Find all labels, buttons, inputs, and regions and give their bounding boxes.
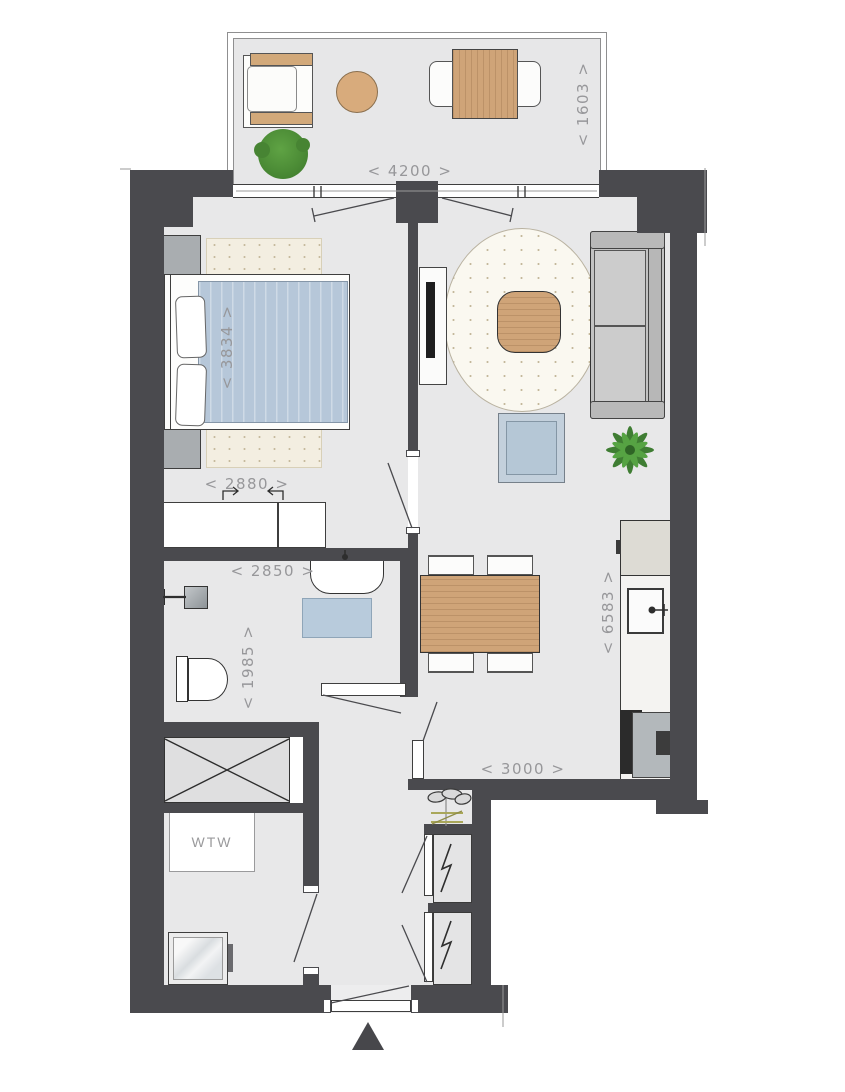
- nightstand: [163, 235, 201, 275]
- wall-bottom-right: [411, 985, 508, 1013]
- entrance-door: [331, 1000, 411, 1012]
- dining-chair: [487, 555, 533, 575]
- dim-bed-length: < 3834 >: [218, 305, 236, 390]
- washing-machine-knob: [228, 944, 233, 972]
- dim-bathroom-width: < 2850 >: [231, 562, 316, 580]
- lounge-chair-cushion: [247, 66, 297, 112]
- dim-balcony-depth: < 1603 >: [574, 62, 592, 147]
- dining-chair: [487, 653, 533, 673]
- shaft-access-panel: [290, 737, 303, 803]
- wall-bottom-left: [130, 985, 331, 1013]
- wtw-label: WTW: [192, 834, 233, 850]
- washing-machine-door: [173, 937, 223, 980]
- outdoor-chair: [429, 61, 453, 107]
- wall-closet-mid: [428, 903, 474, 912]
- washing-machine: [168, 932, 228, 985]
- electrical-cabinet-2: [433, 912, 472, 985]
- balcony-plant-leaf: [296, 138, 310, 152]
- dining-table: [420, 575, 540, 653]
- armchair-pouf-cushion: [506, 421, 557, 475]
- door-jamb: [303, 967, 319, 975]
- door-jamb: [406, 450, 420, 457]
- wall-right: [670, 226, 697, 803]
- toilet-tank: [176, 656, 188, 702]
- lounge-chair-armrest: [250, 112, 313, 125]
- electrical-cabinet-1: [433, 834, 472, 903]
- toilet-bowl: [188, 658, 228, 701]
- outdoor-chair: [517, 61, 541, 107]
- balcony-plant-leaf: [254, 142, 270, 158]
- bed-pillow: [175, 295, 207, 358]
- dining-chair: [428, 653, 474, 673]
- wall-living-bottom: [472, 779, 697, 800]
- lounge-chair-armrest: [250, 53, 313, 66]
- bathroom-door: [321, 683, 406, 696]
- wardrobe-divider: [277, 503, 279, 547]
- wall-bathroom-top: [163, 548, 418, 561]
- wall-closet-top: [424, 824, 474, 834]
- dim-kitchen-wall: < 6583 >: [599, 570, 617, 655]
- bed-pillow: [175, 363, 207, 426]
- dim-balcony-width: < 4200 >: [368, 162, 453, 180]
- sofa-cushion: [594, 326, 646, 402]
- duct-shaft: [164, 737, 290, 803]
- closet-door-2: [424, 912, 433, 982]
- dim-bathroom-depth: < 1985 >: [239, 625, 257, 710]
- wtw-unit: WTW: [169, 812, 255, 872]
- closet-door-1: [424, 834, 433, 896]
- wall-right-foot: [656, 800, 708, 814]
- door-jamb: [323, 999, 331, 1013]
- floor-plan: WTW: [0, 0, 845, 1092]
- door-jamb: [303, 885, 319, 893]
- wall-bedroom-living-divider: [408, 221, 418, 455]
- entrance-marker: [352, 1022, 384, 1050]
- coffee-table: [497, 291, 561, 353]
- kitchen-sink: [627, 588, 664, 634]
- bathroom-sink: [310, 556, 384, 594]
- dining-chair: [428, 555, 474, 575]
- bath-mat: [302, 598, 372, 638]
- dim-bedroom-width: < 2880 >: [205, 475, 290, 493]
- door-jamb: [411, 999, 419, 1013]
- nightstand: [163, 429, 201, 469]
- shower-head: [184, 586, 208, 609]
- tv: [426, 282, 435, 358]
- side-table: [336, 71, 378, 113]
- wall-laundry-right: [303, 722, 319, 892]
- wardrobe: [163, 502, 326, 548]
- outdoor-table: [452, 49, 518, 119]
- dim-hall-width: < 3000 >: [481, 760, 566, 778]
- wall-bathroom-right: [400, 552, 418, 697]
- wall-left: [130, 197, 164, 1013]
- wall-corner-right: [637, 170, 707, 233]
- door-jamb: [406, 527, 420, 534]
- balcony-door-pillar: [396, 181, 438, 223]
- sofa-armrest: [590, 231, 665, 249]
- fridge: [620, 520, 672, 576]
- wall-hall-living-stub: [408, 779, 478, 790]
- hall-living-door: [412, 740, 424, 779]
- wall-bathroom-bottom: [163, 722, 319, 737]
- fridge-handle: [616, 540, 621, 554]
- sofa-backrest: [648, 238, 662, 412]
- sofa-cushion: [594, 250, 646, 326]
- wall-hall-right: [472, 779, 491, 985]
- wall-shaft-bottom: [163, 803, 304, 813]
- sofa-armrest: [590, 401, 665, 419]
